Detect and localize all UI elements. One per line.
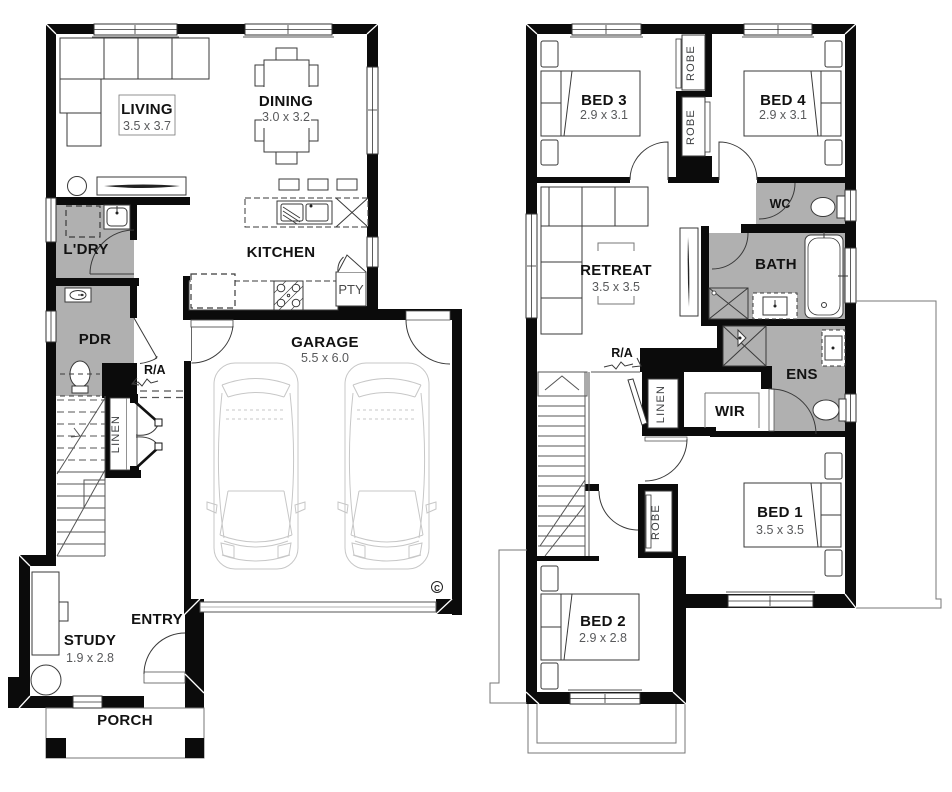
svg-text:ENS: ENS [786,366,818,383]
svg-text:LINEN: LINEN [110,415,122,453]
svg-text:BED 1: BED 1 [757,504,803,521]
svg-text:R/A: R/A [611,346,633,360]
svg-text:C: C [434,584,440,593]
svg-text:RETREAT: RETREAT [580,262,652,279]
svg-text:L'DRY: L'DRY [63,241,108,258]
svg-text:3.5 x 3.5: 3.5 x 3.5 [756,523,804,537]
svg-text:LINEN: LINEN [655,385,667,423]
svg-text:3.0 x 3.2: 3.0 x 3.2 [262,110,310,124]
svg-text:1.9 x 2.8: 1.9 x 2.8 [66,651,114,665]
svg-text:GARAGE: GARAGE [291,334,359,351]
svg-text:3.5 x 3.5: 3.5 x 3.5 [592,280,640,294]
svg-text:ROBE: ROBE [650,504,662,540]
svg-text:2.9 x 3.1: 2.9 x 3.1 [580,108,628,122]
svg-text:R/A: R/A [144,363,166,377]
svg-text:3.5 x 3.7: 3.5 x 3.7 [123,119,171,133]
svg-text:DINING: DINING [259,93,313,110]
svg-text:ENTRY: ENTRY [131,611,183,628]
svg-text:WC: WC [770,197,791,211]
svg-text:BED 2: BED 2 [580,613,626,630]
svg-text:2.9 x 2.8: 2.9 x 2.8 [579,631,627,645]
svg-text:ROBE: ROBE [685,45,697,81]
svg-text:5.5 x 6.0: 5.5 x 6.0 [301,351,349,365]
svg-text:BED 3: BED 3 [581,92,627,109]
svg-text:PTY: PTY [338,282,364,297]
svg-text:PORCH: PORCH [97,712,153,729]
svg-text:KITCHEN: KITCHEN [247,244,316,261]
svg-text:WIR: WIR [715,403,745,420]
svg-text:PDR: PDR [79,331,112,348]
svg-text:LIVING: LIVING [121,101,173,118]
svg-text:2.9 x 3.1: 2.9 x 3.1 [759,108,807,122]
svg-text:BED 4: BED 4 [760,92,806,109]
svg-text:ROBE: ROBE [685,109,697,145]
svg-text:BATH: BATH [755,256,797,273]
svg-text:STUDY: STUDY [64,632,116,649]
